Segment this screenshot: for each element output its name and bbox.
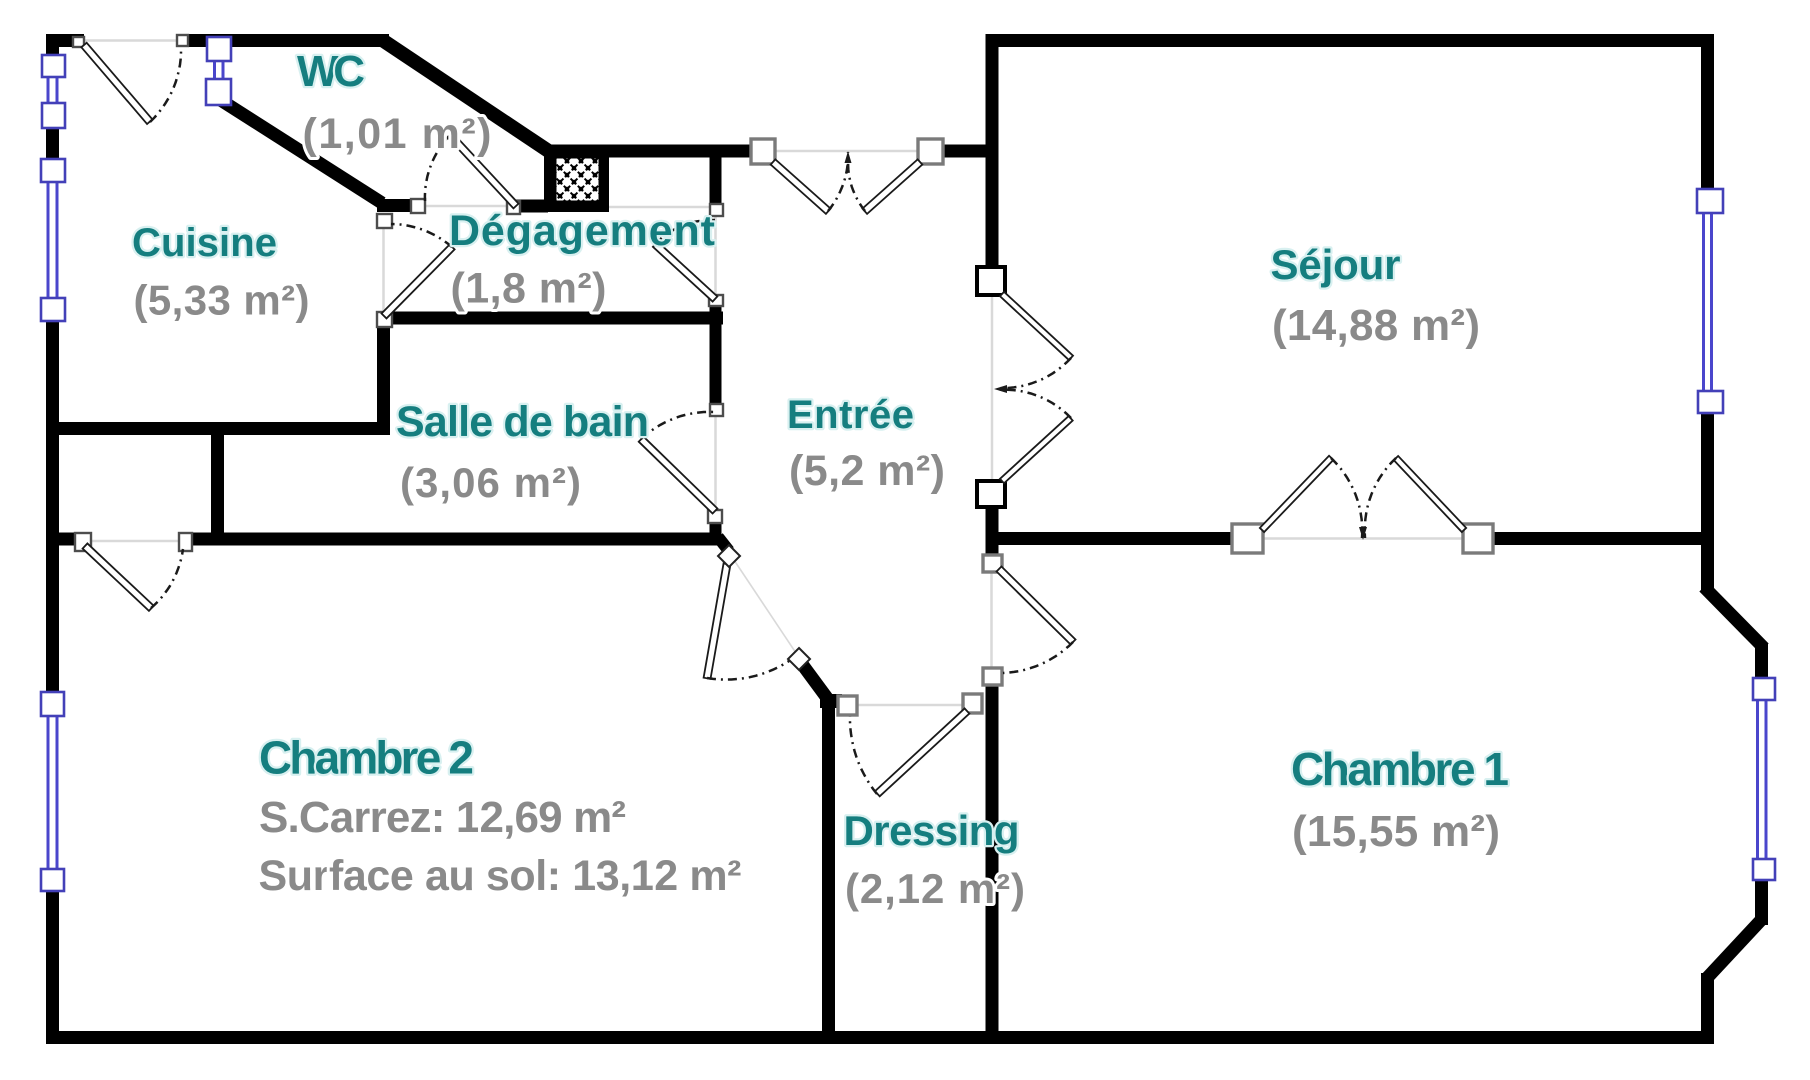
svg-text:Chambre 1: Chambre 1 (1291, 743, 1509, 795)
svg-text:Surface au sol: 13,12 m²: Surface au sol: 13,12 m² (259, 852, 742, 900)
svg-text:(5,2 m²): (5,2 m²) (789, 447, 945, 495)
svg-text:(2,12 m²): (2,12 m²) (845, 865, 1025, 912)
svg-text:(5,33 m²): (5,33 m²) (134, 277, 310, 324)
svg-text:S.Carrez: 12,69 m²: S.Carrez: 12,69 m² (259, 793, 626, 842)
svg-text:Chambre 2: Chambre 2 (259, 732, 474, 784)
svg-text:(1,8 m²): (1,8 m²) (451, 265, 607, 313)
svg-text:Dégagement: Dégagement (449, 207, 715, 255)
svg-text:Cuisine: Cuisine (132, 221, 277, 265)
svg-text:(15,55 m²): (15,55 m²) (1292, 807, 1500, 856)
svg-text:Séjour: Séjour (1271, 241, 1401, 288)
svg-text:(14,88 m²): (14,88 m²) (1272, 301, 1480, 350)
svg-text:Dressing: Dressing (844, 807, 1020, 854)
svg-text:Entrée: Entrée (787, 393, 914, 437)
svg-text:Salle de bain: Salle de bain (396, 398, 649, 446)
svg-text:(1,01 m²): (1,01 m²) (303, 110, 492, 158)
svg-text:WC: WC (297, 47, 365, 96)
svg-text:(3,06 m²): (3,06 m²) (400, 459, 581, 506)
